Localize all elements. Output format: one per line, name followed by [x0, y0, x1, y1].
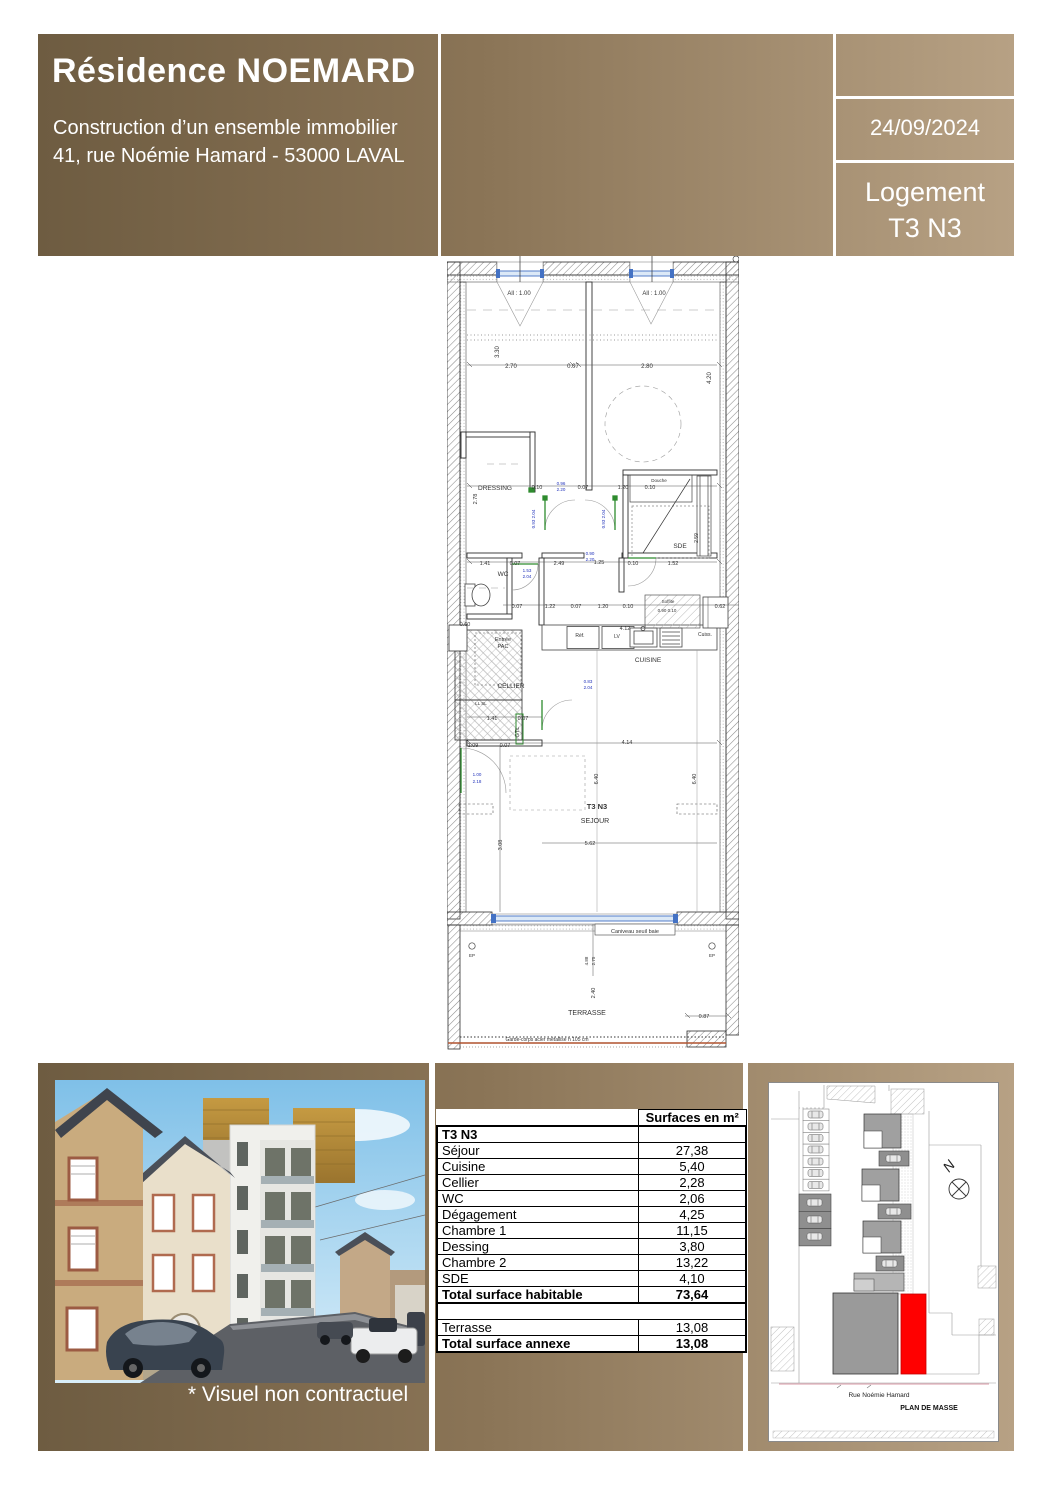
svg-text:N: N [939, 1156, 958, 1175]
plan-label: 1.20 [618, 485, 629, 491]
plan-label: 4.12 [620, 626, 631, 632]
plan-label: 1.41 [487, 716, 498, 722]
plan-label: 2.04 [584, 685, 593, 690]
plan-label: 0.90 0.10 [658, 608, 677, 613]
unit-label: Logement T3 N3 [836, 163, 1014, 256]
plan-label: 4.20 [707, 372, 713, 384]
highlighted-unit [901, 1294, 926, 1374]
unit-label-line1: Logement [865, 174, 985, 210]
plan-label: 2.04 [523, 574, 532, 579]
plan-label: 1.20 [598, 604, 609, 610]
plan-label: 5.62 [585, 841, 596, 847]
plan-label: 0.10 [645, 485, 656, 491]
plan-label: 0.07 [510, 561, 521, 567]
plan-label: 1.41 [480, 561, 491, 567]
parking-stalls [799, 1109, 831, 1246]
plan-label: 6.40 [692, 774, 698, 785]
plan-label: TERRASSE [568, 1010, 606, 1017]
date-label: 24/09/2024 [836, 99, 1014, 157]
banner-right-column: 24/09/2024 Logement T3 N3 [836, 34, 1014, 256]
surface-table: Surfaces en m² T3 N3Séjour27,38Cuisine5,… [436, 1109, 747, 1353]
plan-label: 6.40 [594, 774, 600, 785]
plan-label: 0.96 [557, 481, 566, 486]
plan-label: 2.78 [473, 494, 479, 505]
plan-label: 0.90 [586, 551, 595, 556]
plan-label: 0.83 [584, 679, 593, 684]
project-subtitle: Construction d’un ensemble immobilier 41… [53, 114, 405, 170]
svg-text:Rue Noémie Hamard: Rue Noémie Hamard [848, 1392, 909, 1399]
plan-label: LV [614, 634, 620, 640]
svg-text:PLAN DE MASSE: PLAN DE MASSE [900, 1405, 958, 1412]
table-row: Cellier2,28 [437, 1175, 746, 1191]
plan-label: 4.14 [622, 740, 633, 746]
plan-label: 1.22 [545, 604, 556, 610]
banner-divider [438, 34, 441, 256]
table-row: Terrasse13,08 [437, 1320, 746, 1336]
document-page: Résidence NOEMARD Construction d’un ense… [0, 0, 1053, 1491]
plan-label: T3 N3 [587, 802, 607, 811]
plan-label: 3.30 [495, 346, 501, 358]
page-title: Résidence NOEMARD [52, 52, 416, 91]
plan-label: DRESSING [478, 485, 512, 492]
table-row: T3 N3 [437, 1126, 746, 1143]
plan-label: 2.20 [586, 557, 595, 562]
table-header-row: Surfaces en m² [437, 1110, 746, 1127]
plan-label: 1.53 [523, 568, 532, 573]
plan-label: GTL [515, 727, 521, 738]
table-row: Total surface annexe13,08 [437, 1336, 746, 1353]
plan-label: 1.52 [668, 561, 679, 567]
header-surfaces-cell: Surfaces en m² [639, 1110, 747, 1127]
plan-label: 2.59 [694, 533, 700, 543]
table-row: SDE4,10 [437, 1271, 746, 1287]
plan-label: 3.08 [498, 840, 504, 851]
plan-label: 0.10 [623, 604, 634, 610]
plan-label: WC [498, 571, 509, 578]
plan-label: Soffite [662, 599, 675, 604]
plan-label: 1.09 [468, 743, 479, 749]
header-empty-cell [437, 1110, 639, 1127]
plan-label: SDE [673, 543, 687, 550]
plan-label: 2.70 [505, 364, 517, 370]
plan-label: 4.88 [584, 956, 589, 965]
table-row [437, 1303, 746, 1320]
header-banner: Résidence NOEMARD Construction d’un ense… [38, 34, 1014, 256]
plan-label: 1.00 [473, 772, 482, 777]
plan-label: 0.10 [628, 561, 639, 567]
plan-label: EP [709, 953, 715, 958]
site-plan: N Rue Noémie Hamard PLAN DE MASSE [768, 1082, 999, 1442]
plan-label: Cuiss. [698, 632, 712, 638]
plan-label: CUISINE [635, 657, 662, 664]
plan-label: Douche [651, 478, 667, 483]
plan-label: 0.07 [500, 743, 511, 749]
subtitle-line2: 41, rue Noémie Hamard - 53000 LAVAL [53, 142, 405, 170]
plan-label: 2.20 [557, 487, 566, 492]
plan-label: LL SL [475, 701, 487, 706]
north-symbol: N [939, 1156, 969, 1199]
plan-label: Entrée [495, 637, 511, 643]
plan-label: 0.93 2.04 [531, 509, 536, 528]
plan-label: SEJOUR [581, 818, 609, 825]
plan-label: CELLIER [497, 683, 524, 690]
bottom-strip: * Visuel non contractuel Surfaces en m² … [38, 1063, 1014, 1451]
plan-label: PAC [498, 644, 509, 650]
building-photo [55, 1080, 425, 1383]
plan-label: EP [469, 953, 475, 958]
plan-label: 2.80 [641, 364, 653, 370]
unit-label-line2: T3 N3 [865, 210, 985, 246]
plan-label: Caniveau seuil baie [611, 929, 659, 935]
plan-label: 0.62 [715, 604, 726, 610]
table-row: Total surface habitable73,64 [437, 1287, 746, 1304]
table-row: WC2,06 [437, 1191, 746, 1207]
window-swings [497, 282, 673, 326]
plan-label: 0.07 [518, 716, 529, 722]
plan-label: 0.07 [512, 604, 523, 610]
table-row: Dégagement4,25 [437, 1207, 746, 1223]
toilet-fixture [465, 584, 490, 606]
plan-label: All : 1.00 [507, 291, 531, 297]
subtitle-line1: Construction d’un ensemble immobilier [53, 114, 405, 142]
plan-label: 2.18 [473, 779, 482, 784]
plan-label: 0.07 [567, 364, 579, 370]
window-north-2 [629, 262, 674, 282]
plan-label: 0.87 [699, 1014, 710, 1020]
shower-room [630, 475, 711, 558]
plan-label: 2.49 [554, 561, 565, 567]
plan-label: 0.07 [578, 485, 589, 491]
floor-plan: All : 1.00All : 1.002.700.072.803.304.20… [447, 256, 739, 1064]
table-row: Séjour27,38 [437, 1143, 746, 1159]
plan-label: Garde-corps acier métallisé h 105 cm [505, 1037, 588, 1043]
plan-label: All : 1.00 [642, 291, 666, 297]
table-row: Chambre 213,22 [437, 1255, 746, 1271]
plan-label: 0.07 [571, 604, 582, 610]
plan-label: 2.40 [591, 988, 597, 999]
photo-caption: * Visuel non contractuel [153, 1383, 443, 1407]
table-row: Dessing3,80 [437, 1239, 746, 1255]
plan-label: 1.25 [594, 560, 605, 566]
floor-plan-drawing: All : 1.00All : 1.002.700.072.803.304.20… [447, 256, 739, 1064]
building-footprints [833, 1114, 911, 1374]
plan-label: 0.10 [532, 485, 543, 491]
table-row: Cuisine5,40 [437, 1159, 746, 1175]
plan-label: Réf. [575, 633, 584, 639]
plan-label: 0.60 [460, 622, 471, 628]
table-row: Chambre 111,15 [437, 1223, 746, 1239]
plan-label: 0.93 2.04 [601, 509, 606, 528]
plan-label: 2.75 [591, 956, 596, 965]
